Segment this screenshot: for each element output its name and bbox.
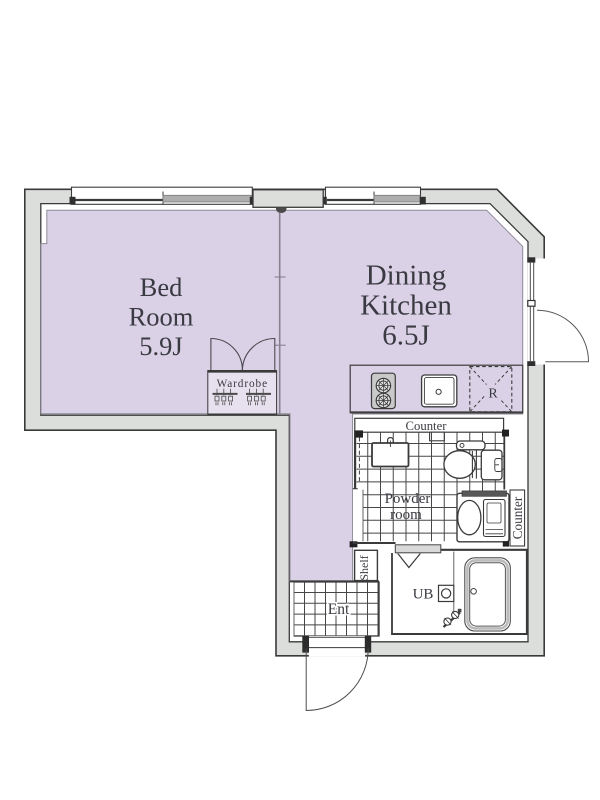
svg-text:Dining: Dining: [366, 260, 447, 292]
svg-text:Counter: Counter: [510, 496, 525, 539]
svg-text:Bed: Bed: [140, 272, 183, 302]
svg-text:Room: Room: [129, 302, 194, 332]
svg-text:room: room: [390, 507, 422, 523]
svg-text:5.9J: 5.9J: [139, 331, 182, 361]
svg-text:6.5J: 6.5J: [382, 320, 430, 352]
svg-text:R: R: [488, 386, 498, 401]
svg-text:UB: UB: [413, 587, 434, 603]
svg-text:Powder: Powder: [385, 491, 431, 507]
svg-text:Kitchen: Kitchen: [360, 290, 452, 322]
svg-text:Counter: Counter: [406, 419, 448, 433]
svg-text:Wardrobe: Wardrobe: [217, 378, 268, 390]
svg-text:Ent: Ent: [328, 601, 350, 618]
svg-text:Shelf: Shelf: [357, 555, 371, 580]
